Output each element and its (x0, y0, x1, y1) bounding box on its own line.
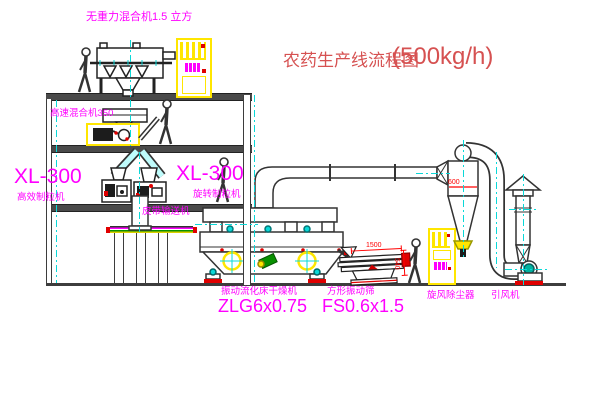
centerline (139, 152, 140, 232)
centerline (509, 209, 537, 210)
centerline (496, 152, 497, 268)
centerline (463, 140, 464, 258)
building-right-column (243, 95, 251, 285)
label-fan: 引风机 (491, 291, 520, 301)
centerline (130, 40, 131, 146)
label-dryer-model: ZLG6x0.75 (218, 297, 307, 315)
centerline (254, 95, 255, 283)
dimension-screen-height: 540 (393, 258, 400, 270)
label-granulator-left-model: XL-300 (14, 166, 82, 187)
worker-figure (79, 48, 90, 92)
label-granulator-right-model: XL-300 (176, 163, 244, 184)
diagram-title-capacity: (500kg/h) (392, 45, 493, 69)
centerline (416, 173, 450, 174)
fluid-bed-dryer (200, 208, 349, 283)
granulator-left (102, 168, 131, 202)
label-granulator-left-name: 高效制粒机 (17, 193, 65, 203)
dimension-cyclone-diameter: 600 (448, 179, 460, 186)
gravity-free-mixer (90, 43, 175, 96)
dimension-screen-length: 1500 (366, 242, 382, 249)
centerline (195, 224, 258, 225)
label-high-speed-mixer: 高速混合机350 (50, 109, 113, 119)
label-gravity-mixer: 无重力混合机1.5 立方 (86, 12, 192, 23)
centerline (505, 269, 547, 270)
worker-figure (409, 239, 420, 283)
cyclone-separator (437, 145, 478, 257)
label-granulator-right-name: 旋转制粒机 (193, 190, 241, 200)
label-screen-model: FS0.6x1.5 (322, 297, 404, 315)
label-cyclone: 旋风除尘器 (427, 291, 475, 301)
process-flow-diagram: 农药生产线流程图 (500kg/h) 无重力混合机1.5 立方 高速混合机350… (0, 0, 600, 403)
label-belt-conveyor: 皮带输送机 (142, 207, 190, 217)
vibrating-screen (337, 244, 411, 286)
worker-figure (160, 100, 171, 144)
